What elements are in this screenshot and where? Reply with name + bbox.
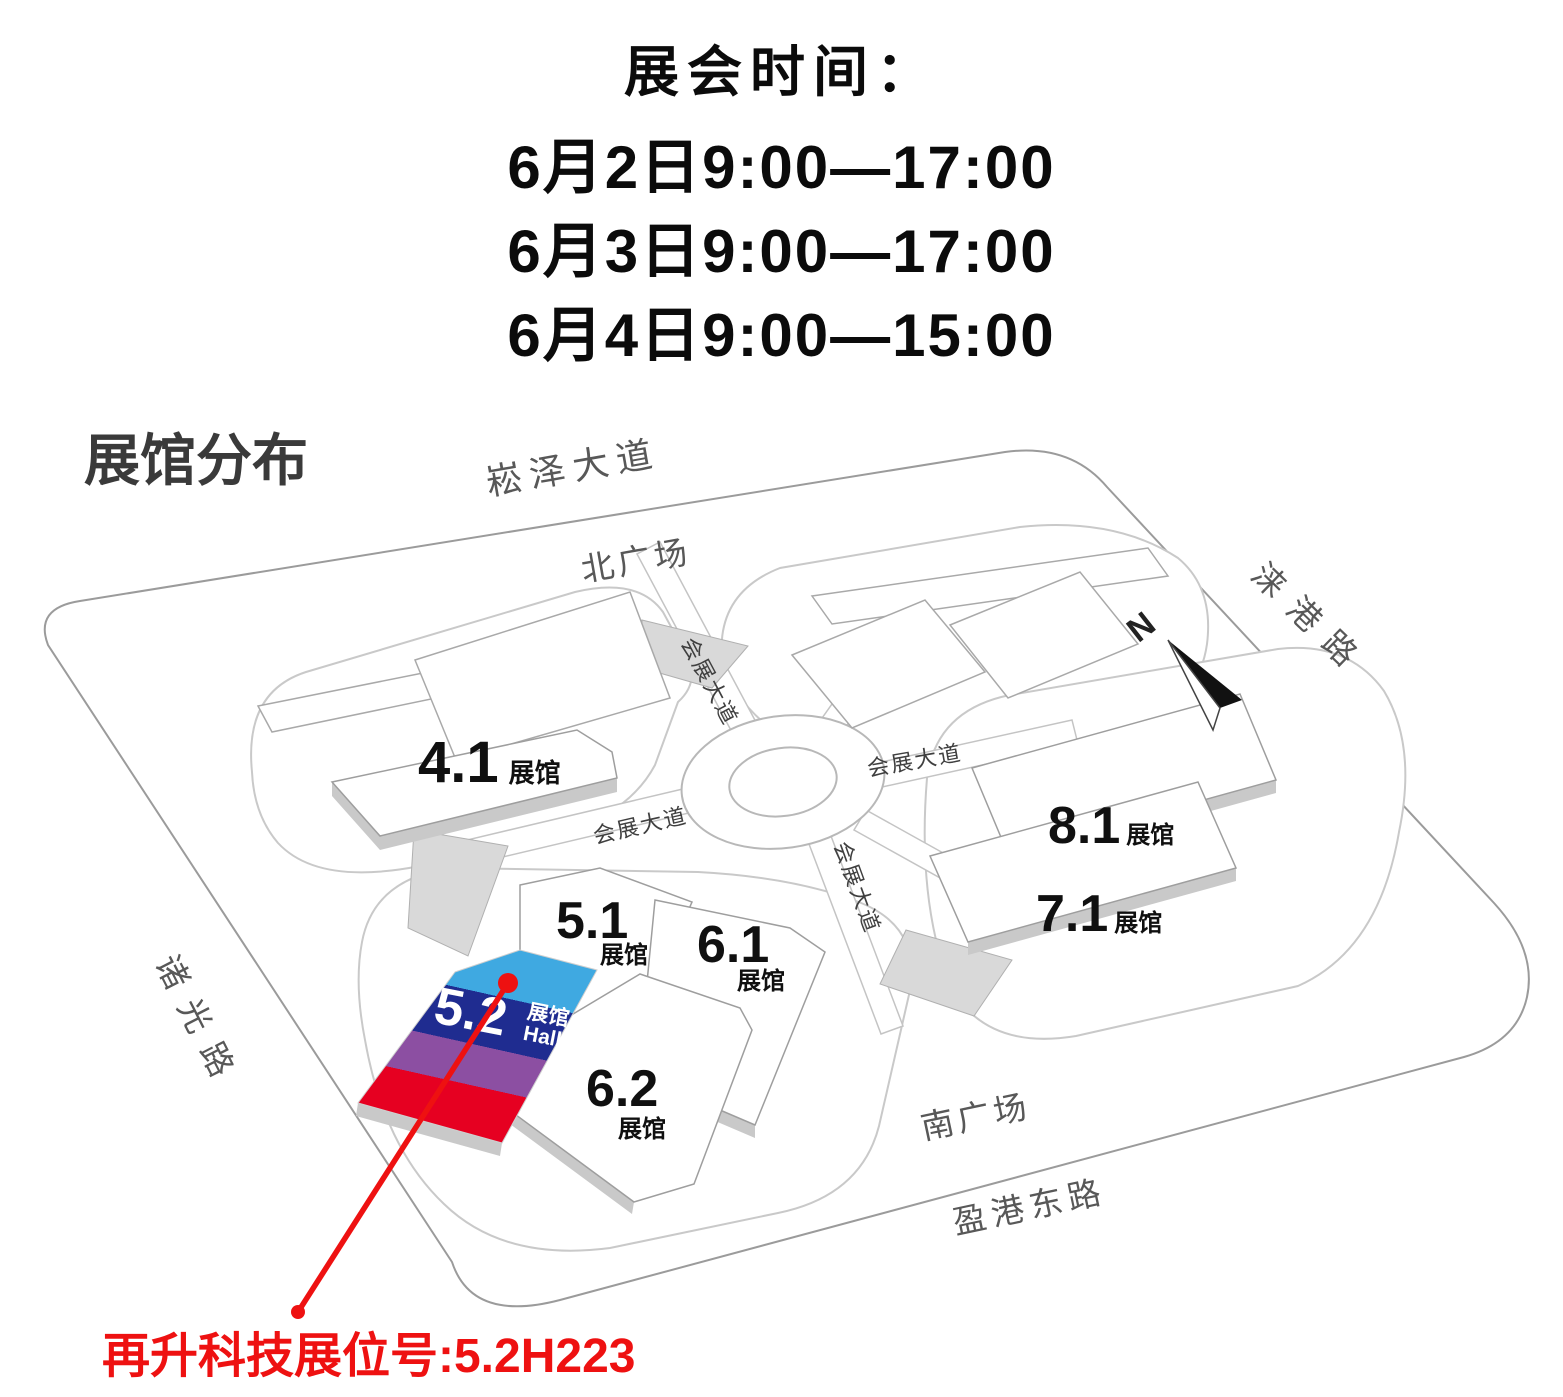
hall-6-2-number: 6.2 [586, 1060, 658, 1118]
road-songze-avenue: 崧泽大道 [483, 432, 663, 503]
hall-5-1-suffix: 展馆 [600, 941, 648, 969]
map-title: 展馆分布 [84, 429, 308, 492]
booth-location-dot [498, 973, 518, 993]
hall-6-1-suffix: 展馆 [737, 967, 785, 995]
road-zhuguang: 诸光路 [148, 949, 248, 1097]
booth-pointer-end-dot [291, 1305, 305, 1319]
hall-6-1-number: 6.1 [697, 916, 769, 974]
venue-map: 展馆分布 4.1展馆 5.1 展馆 6.1 展馆 6.2 展馆 [0, 0, 1563, 1397]
hall-6-2-suffix: 展馆 [618, 1115, 666, 1143]
road-yinggang-east: 盈港东路 [949, 1172, 1109, 1241]
south-plaza-label: 南广场 [917, 1087, 1033, 1146]
booth-number-text: 再升科技展位号:5.2H223 [102, 1330, 635, 1383]
